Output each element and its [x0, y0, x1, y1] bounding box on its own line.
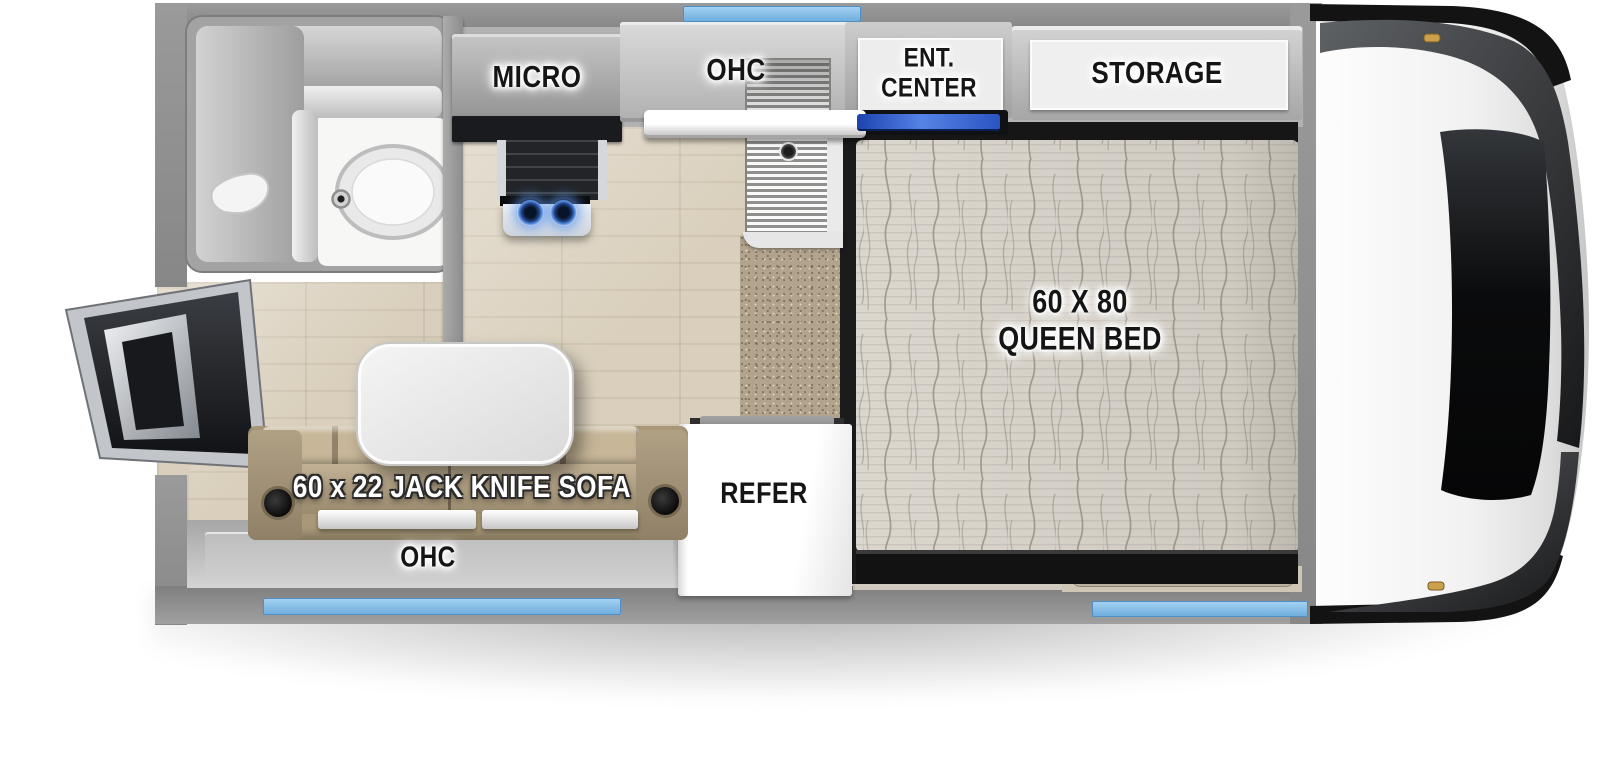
- floorplan: MICRO OHC ENT. CENTER STORAGE 60 X 80 QU…: [0, 0, 1600, 760]
- bed-frame-bottom: [856, 550, 1298, 584]
- bed-label-line1: 60 X 80: [1032, 284, 1128, 321]
- nose-window: [1440, 129, 1550, 500]
- ent-center-label-line1: ENT.: [904, 43, 955, 74]
- cup-holder-left: [261, 486, 295, 520]
- bed-label-line2: QUEEN BED: [998, 321, 1162, 358]
- bathroom: [186, 16, 452, 272]
- burner-right: [550, 199, 577, 226]
- shower-ledge-left: [292, 110, 318, 262]
- micro-label: MICRO: [493, 59, 582, 95]
- range-hood: [452, 116, 622, 142]
- window-bottom-right: [1092, 601, 1308, 617]
- tv: [857, 114, 1000, 131]
- cooktop-tray: [503, 204, 591, 236]
- cup-holder-right: [648, 484, 682, 518]
- window-top: [683, 6, 861, 22]
- clearance-light-top: [1424, 34, 1440, 42]
- window-bottom-left: [263, 598, 621, 615]
- camper-nose: [1310, 4, 1589, 624]
- ent-center-label-line2: CENTER: [881, 73, 977, 104]
- sofa-label: 60 x 22 JACK KNIFE SOFA: [293, 469, 631, 505]
- burner-left: [517, 199, 544, 226]
- sofa-trim-right: [482, 510, 638, 529]
- kitchen-ohc-label: OHC: [706, 52, 765, 88]
- storage-label: STORAGE: [1091, 55, 1222, 91]
- toilet-lid: [352, 159, 434, 225]
- entry-door: [66, 280, 268, 468]
- refer-label: REFER: [720, 477, 808, 511]
- counter-apron: [743, 232, 843, 248]
- counter-shelf: [644, 110, 866, 138]
- dinette-table: [356, 342, 574, 466]
- clearance-light-bottom: [1428, 582, 1444, 590]
- sofa-trim-left: [318, 510, 476, 529]
- rear-ohc-label: OHC: [400, 542, 455, 575]
- cooktop: [497, 140, 607, 200]
- shower-wall-left: [196, 26, 304, 262]
- vent-hole: [779, 142, 798, 161]
